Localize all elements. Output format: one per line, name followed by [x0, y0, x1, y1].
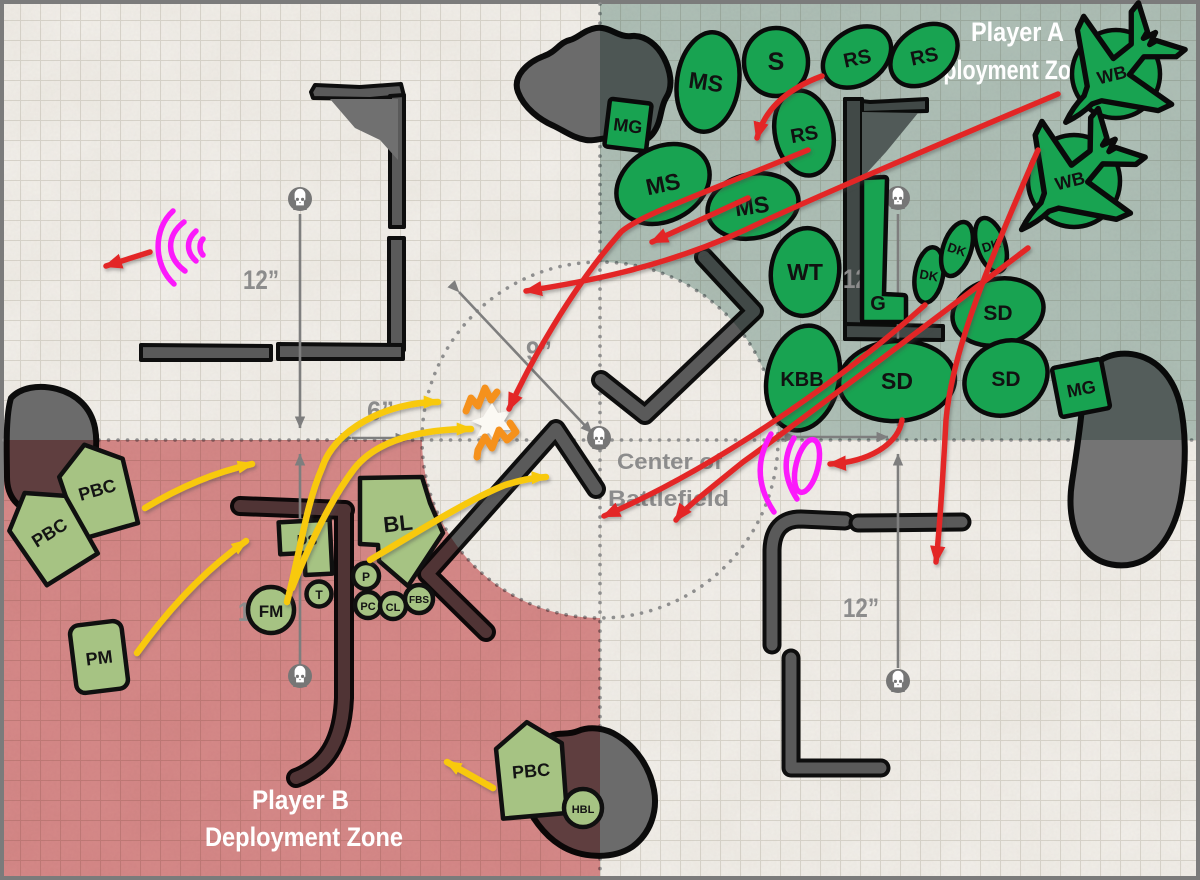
- svg-text:12”: 12”: [243, 265, 279, 295]
- svg-text:MG: MG: [612, 114, 643, 137]
- svg-text:Player B: Player B: [252, 785, 349, 815]
- svg-text:T: T: [315, 588, 323, 602]
- svg-text:WT: WT: [787, 259, 823, 285]
- svg-text:CL: CL: [386, 602, 401, 614]
- svg-text:FBS: FBS: [409, 595, 429, 606]
- svg-text:P: P: [362, 570, 370, 584]
- svg-text:MS: MS: [733, 191, 771, 222]
- svg-text:PBC: PBC: [511, 759, 551, 782]
- svg-text:Deployment Zone: Deployment Zone: [205, 822, 403, 852]
- svg-text:SD: SD: [881, 368, 913, 394]
- svg-text:PC: PC: [360, 601, 375, 613]
- svg-text:FM: FM: [259, 602, 284, 621]
- svg-text:12”: 12”: [843, 593, 879, 623]
- svg-text:MS: MS: [687, 67, 725, 98]
- svg-text:SD: SD: [991, 368, 1020, 391]
- svg-text:HBL: HBL: [572, 804, 595, 816]
- svg-text:KBB: KBB: [780, 369, 823, 391]
- svg-text:G: G: [870, 293, 886, 315]
- svg-text:S: S: [768, 48, 785, 76]
- svg-text:SD: SD: [983, 302, 1012, 325]
- svg-text:Player A: Player A: [971, 17, 1064, 47]
- svg-text:PM: PM: [85, 646, 114, 669]
